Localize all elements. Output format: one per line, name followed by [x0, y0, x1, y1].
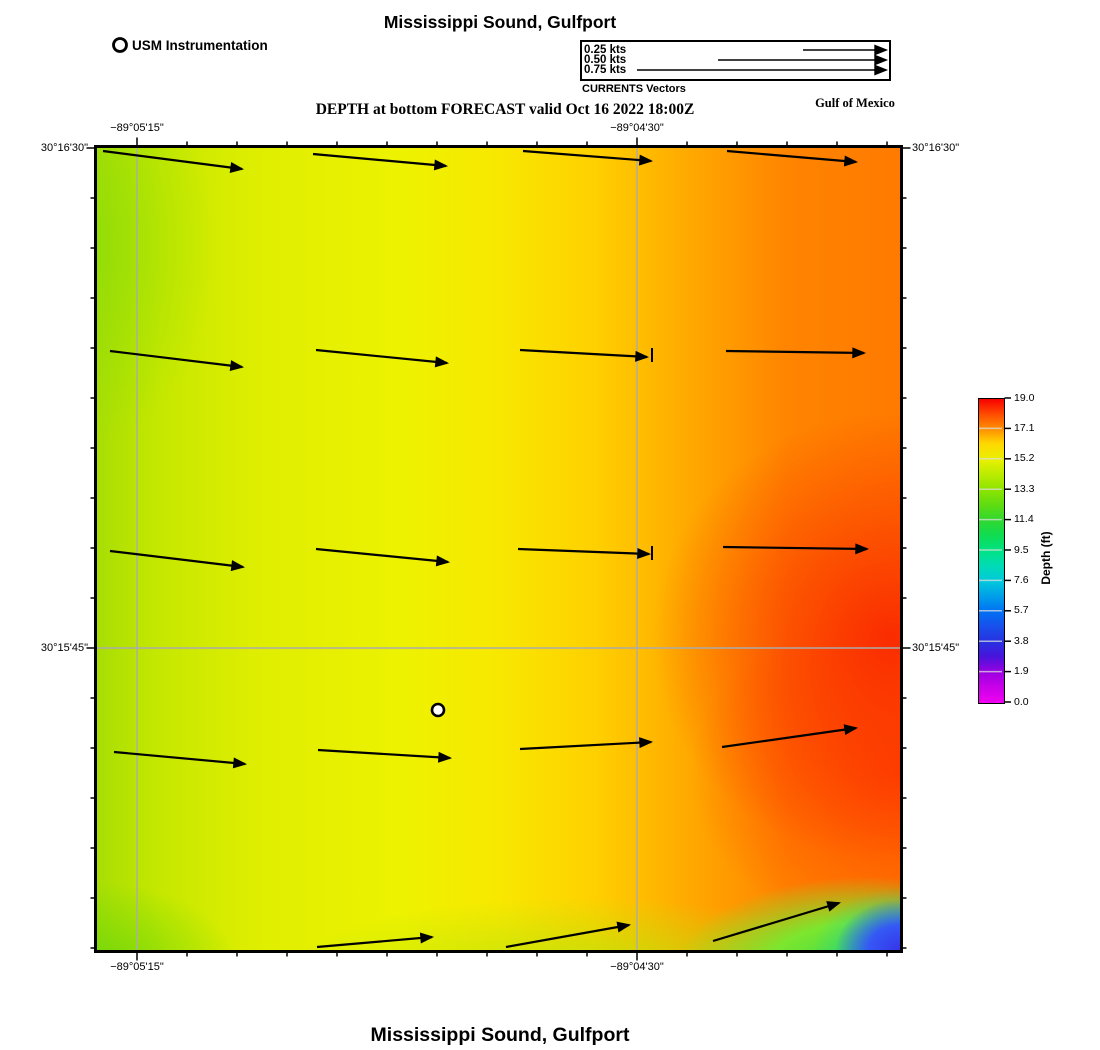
footer-title: Mississippi Sound, Gulfport: [371, 1024, 630, 1047]
colorbar-tick-label: 19.0: [1014, 392, 1034, 404]
x-axis-label-bottom: −89°04'30": [610, 961, 664, 973]
vector-scale-legend: [580, 40, 891, 81]
colorbar-tick-label: 0.0: [1014, 696, 1029, 708]
depth-heatmap: [94, 145, 903, 953]
colorbar-tick-label: 5.7: [1014, 604, 1029, 616]
colorbar-tick-label: 15.2: [1014, 452, 1034, 464]
y-axis-label-right: 30°15'45": [912, 642, 959, 654]
page-title: Mississippi Sound, Gulfport: [384, 12, 616, 33]
legend-vector-label: 0.75 kts: [584, 65, 626, 76]
forecast-caption: DEPTH at bottom FORECAST valid Oct 16 20…: [316, 101, 695, 119]
colorbar-tick-label: 1.9: [1014, 665, 1029, 677]
region-label: Gulf of Mexico: [815, 96, 895, 111]
colorbar-title: Depth (ft): [1039, 531, 1053, 584]
x-axis-label-top: −89°05'15": [110, 122, 164, 134]
x-axis-label-top: −89°04'30": [610, 122, 664, 134]
colorbar-tick-label: 11.4: [1014, 513, 1034, 525]
colorbar-tick-label: 3.8: [1014, 635, 1029, 647]
currents-caption: CURRENTS Vectors: [582, 83, 686, 95]
x-axis-label-bottom: −89°05'15": [110, 961, 164, 973]
y-axis-label-left: 30°16'30": [18, 142, 88, 154]
colorbar-tick-label: 7.6: [1014, 574, 1029, 586]
y-axis-label-right: 30°16'30": [912, 142, 959, 154]
colorbar-tick-label: 17.1: [1014, 422, 1034, 434]
colorbar-tick-label: 13.3: [1014, 483, 1034, 495]
usm-legend-label: USM Instrumentation: [132, 38, 268, 53]
colorbar: [978, 398, 1005, 704]
colorbar-tick-label: 9.5: [1014, 544, 1029, 556]
y-axis-label-left: 30°15'45": [18, 642, 88, 654]
usm-legend-marker: [114, 39, 127, 52]
